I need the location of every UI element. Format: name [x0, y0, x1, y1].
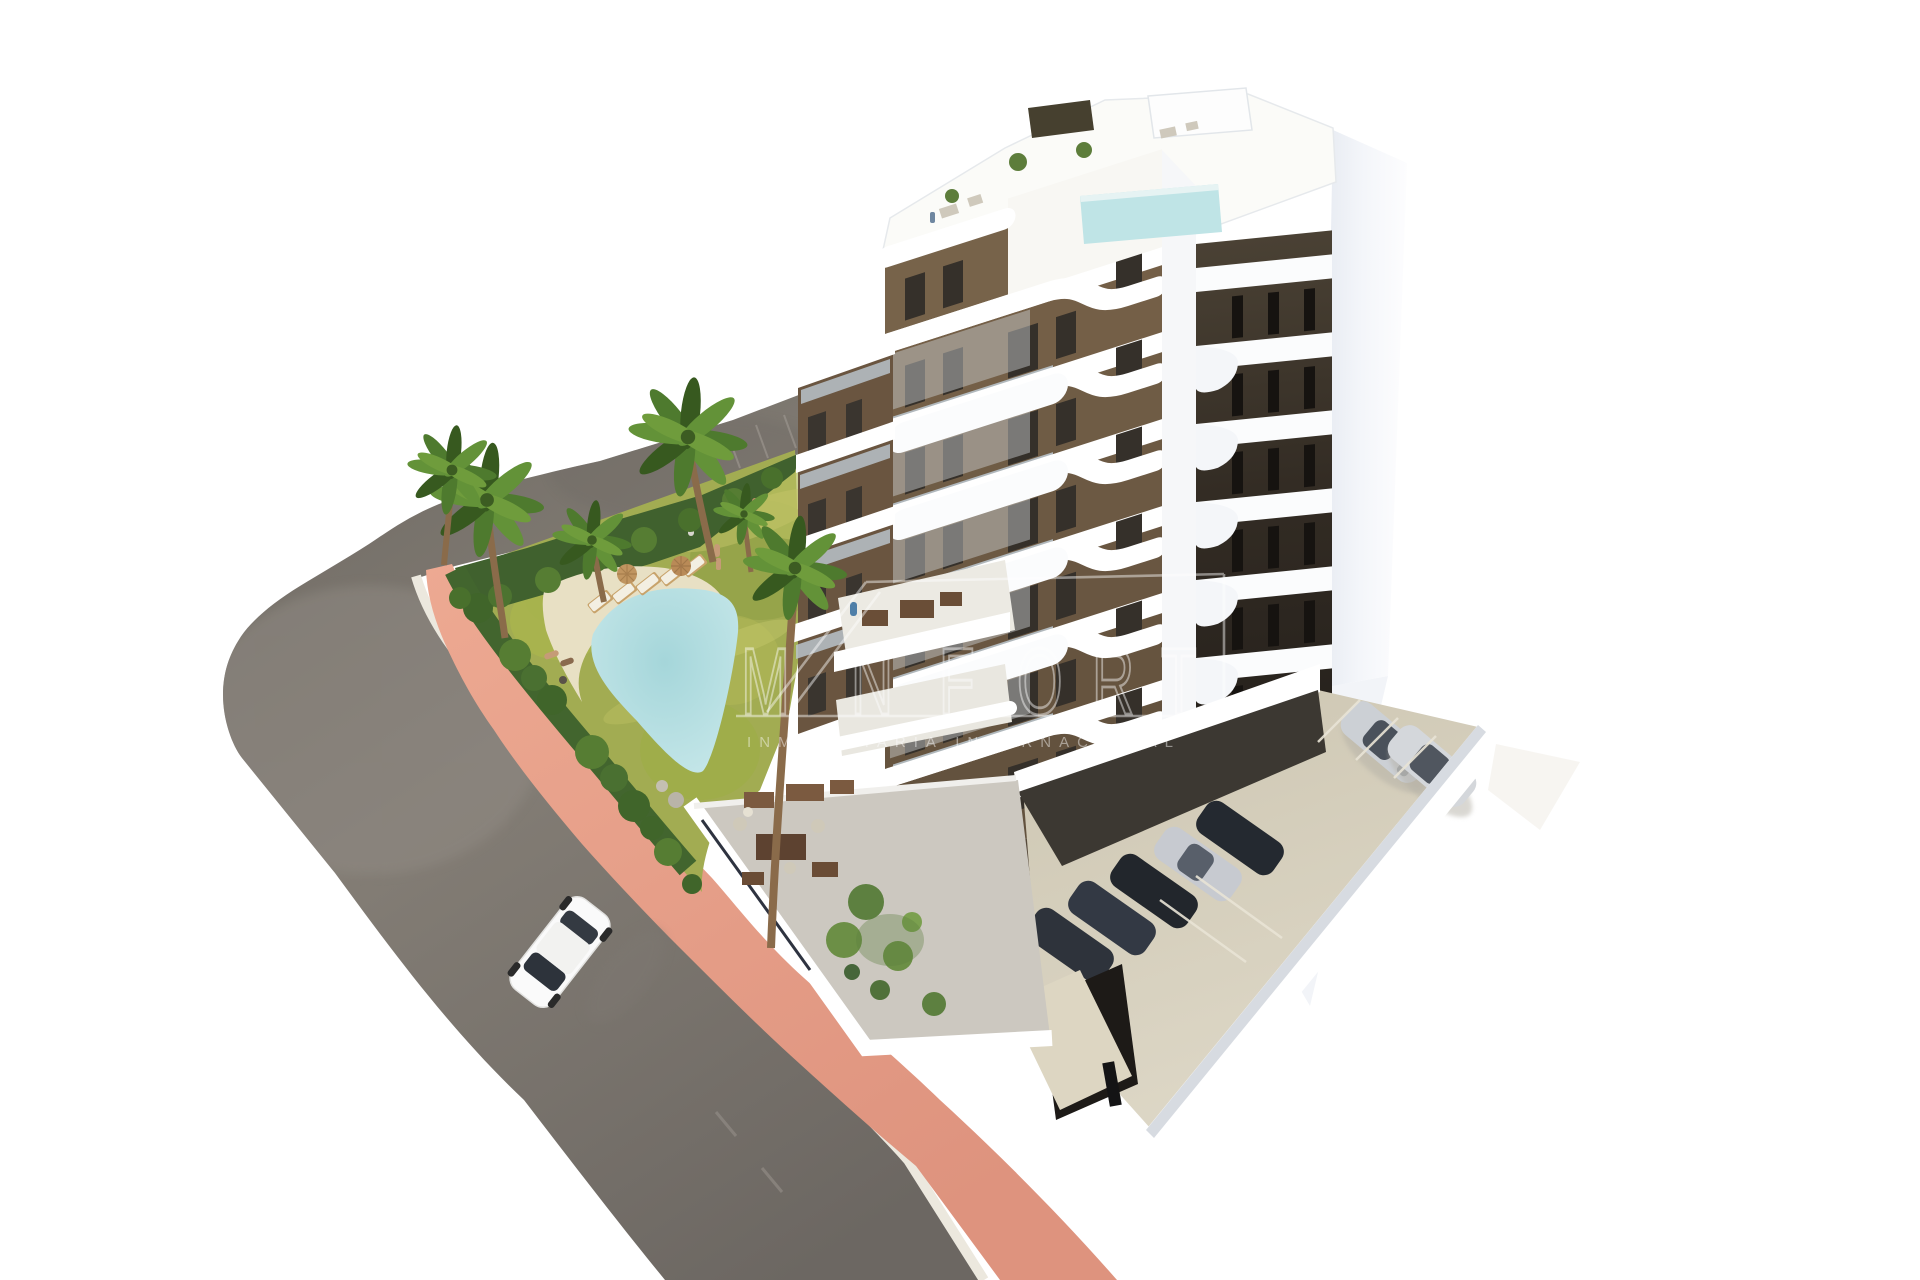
svg-text:O: O — [1017, 627, 1063, 734]
svg-text:R: R — [1092, 627, 1135, 734]
svg-text:T: T — [1161, 627, 1197, 734]
svg-text:F: F — [939, 627, 975, 734]
svg-text:M: M — [741, 627, 790, 734]
svg-text:N: N — [851, 627, 894, 734]
svg-text:INMOBILIARIA INTERNACIONAL: INMOBILIARIA INTERNACIONAL — [747, 734, 1181, 751]
